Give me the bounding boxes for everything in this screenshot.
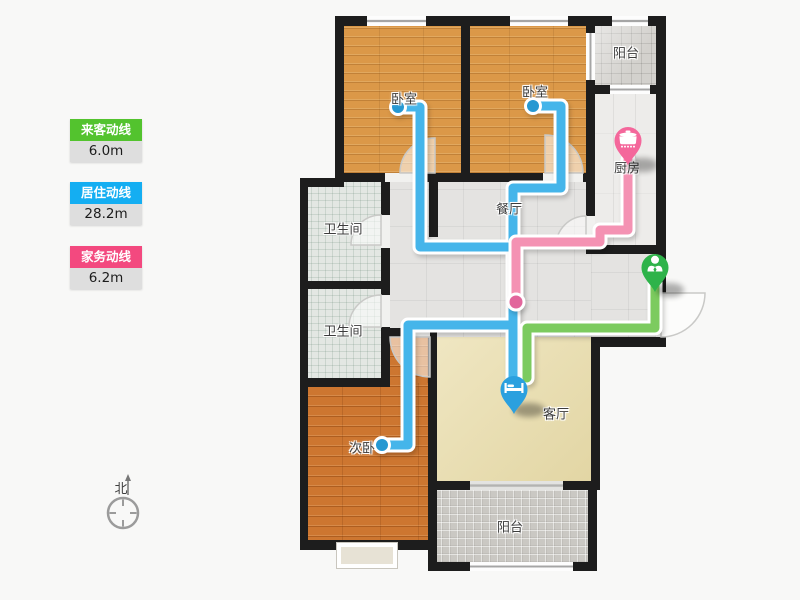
floorplan-canvas: 来客动线 6.0m 居住动线 28.2m 家务动线 6.2m — [0, 0, 800, 600]
marker-shadow — [628, 158, 658, 172]
compass-north-label: 北 — [104, 478, 138, 497]
marker-shadow — [656, 283, 684, 297]
compass — [95, 465, 165, 540]
